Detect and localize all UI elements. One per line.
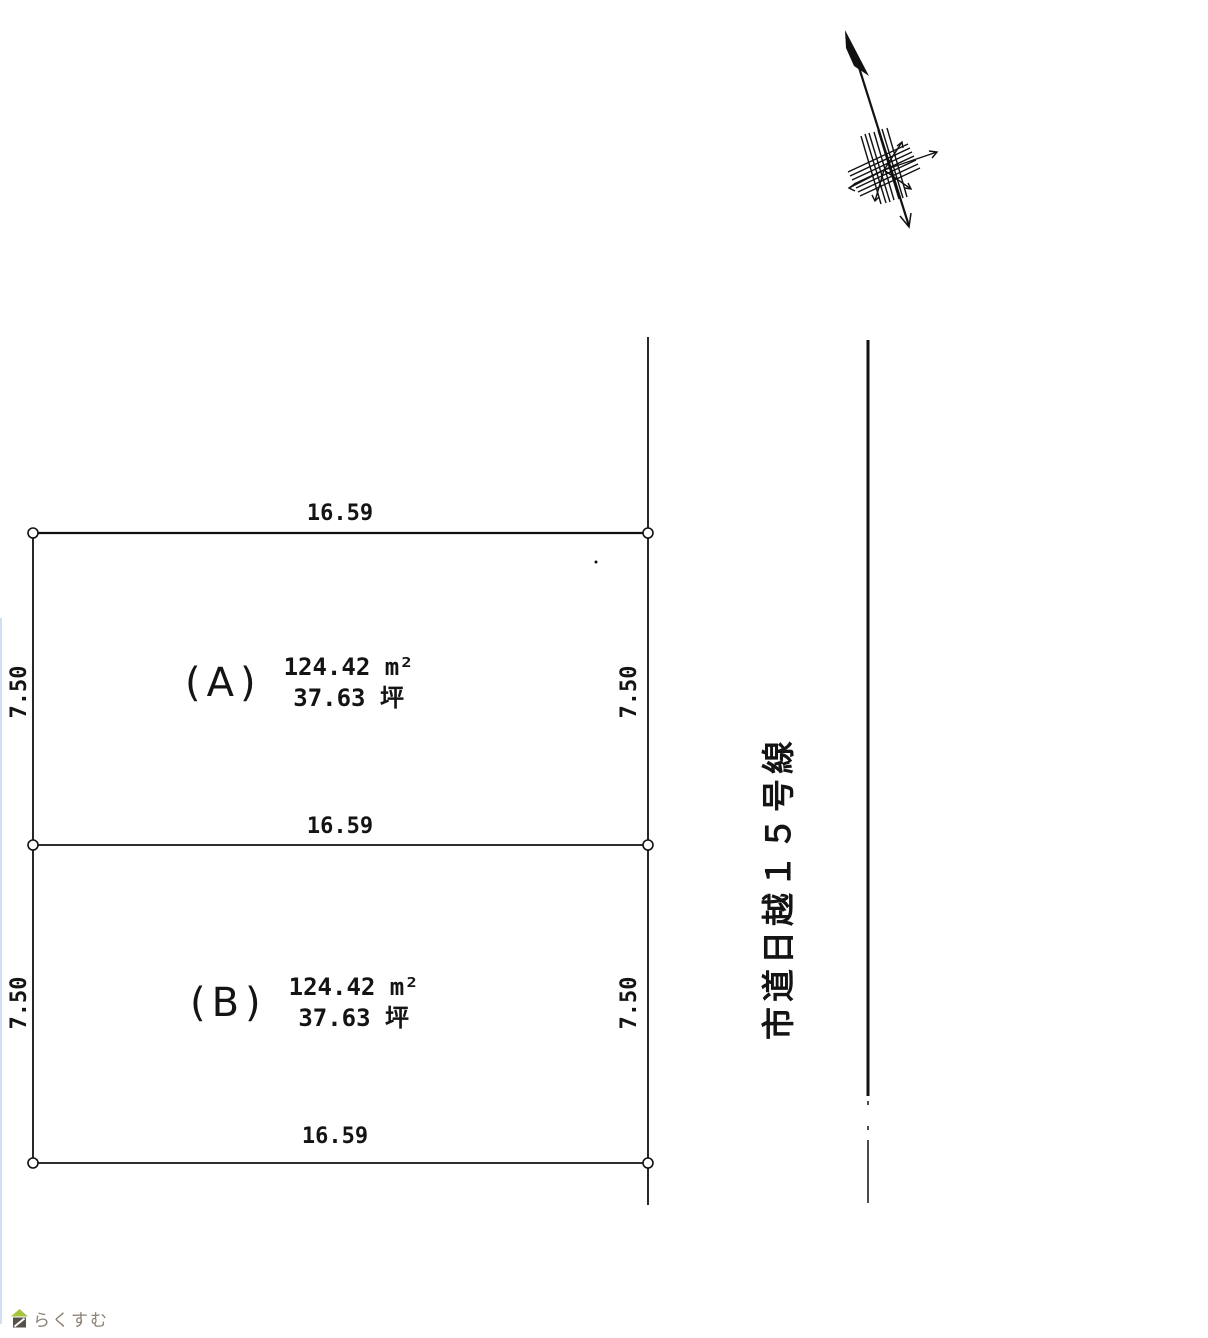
corner-marker xyxy=(28,840,38,850)
dimension-height-b-right: 7.50 xyxy=(619,963,641,1043)
watermark: らくすむ xyxy=(11,1306,109,1331)
scan-strip-artifact xyxy=(0,618,2,1324)
plot-a-areas: 124.42 m² 37.63 坪 xyxy=(284,652,414,714)
road-name-label: 市道日越１５号線 xyxy=(752,733,792,1043)
plot-b-area-sqm: 124.42 m² xyxy=(289,972,419,1003)
corner-marker xyxy=(643,528,653,538)
dimension-height-a-left: 7.50 xyxy=(9,652,31,732)
north-arrow-icon xyxy=(845,30,937,227)
dimension-width-top: 16.59 xyxy=(290,503,390,525)
plot-a-area-tsubo: 37.63 坪 xyxy=(293,683,404,714)
corner-marker xyxy=(643,1158,653,1168)
corner-marker xyxy=(643,840,653,850)
plot-a-label-block: (A) 124.42 m² 37.63 坪 xyxy=(185,652,414,714)
site-plan-canvas: 16.59 16.59 16.59 7.50 7.50 7.50 7.50 (A… xyxy=(0,0,1208,1338)
plot-b-id: (B) xyxy=(190,980,267,1026)
site-plan-linework xyxy=(0,0,1208,1338)
watermark-brand-text: らくすむ xyxy=(33,1306,109,1331)
dimension-height-a-right: 7.50 xyxy=(619,652,641,732)
dimension-height-b-left: 7.50 xyxy=(9,963,31,1043)
plot-b-area-tsubo: 37.63 坪 xyxy=(298,1003,409,1034)
dimension-width-middle: 16.59 xyxy=(290,816,390,838)
dimension-width-bottom: 16.59 xyxy=(285,1126,385,1148)
scan-dot-artifact xyxy=(595,561,598,564)
corner-marker xyxy=(28,528,38,538)
plot-b-label-block: (B) 124.42 m² 37.63 坪 xyxy=(190,972,419,1034)
plot-a-id: (A) xyxy=(185,660,262,706)
plot-b-areas: 124.42 m² 37.63 坪 xyxy=(289,972,419,1034)
house-icon xyxy=(11,1309,28,1328)
plot-a-area-sqm: 124.42 m² xyxy=(284,652,414,683)
corner-marker xyxy=(28,1158,38,1168)
